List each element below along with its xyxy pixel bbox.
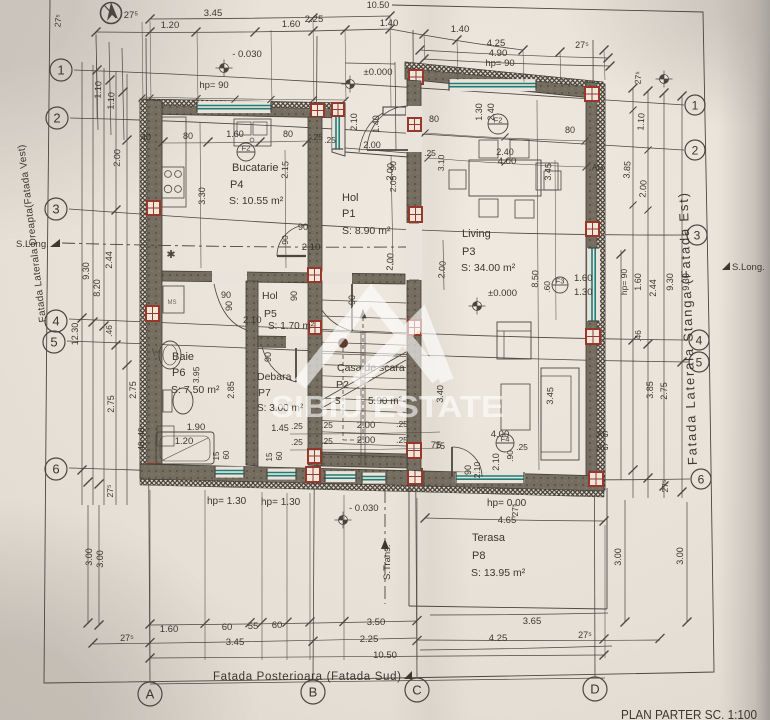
svg-text:1.10: 1.10 <box>106 92 117 110</box>
svg-text:2: 2 <box>53 111 60 126</box>
svg-text:60: 60 <box>222 622 233 633</box>
svg-text:1.40: 1.40 <box>451 24 470 35</box>
svg-text:80: 80 <box>565 125 575 135</box>
svg-text:6: 6 <box>52 462 59 477</box>
svg-text:10.50: 10.50 <box>373 650 397 661</box>
svg-text:.25: .25 <box>396 435 408 445</box>
svg-text:90: 90 <box>224 301 234 311</box>
svg-text:2.05: 2.05 <box>388 175 399 192</box>
svg-text:MS: MS <box>168 300 177 306</box>
svg-text:5: 5 <box>696 355 703 369</box>
svg-text:60: 60 <box>222 450 231 459</box>
svg-text:2.00: 2.00 <box>637 180 648 198</box>
svg-text:3: 3 <box>52 202 59 217</box>
svg-text:5: 5 <box>50 335 57 350</box>
svg-text:.90: .90 <box>505 450 515 462</box>
svg-text:2.00: 2.00 <box>357 435 376 446</box>
svg-text:1.60: 1.60 <box>226 129 244 139</box>
svg-text:S.Trans.: S.Trans. <box>382 544 393 580</box>
svg-text:27⁵: 27⁵ <box>124 10 139 21</box>
svg-text:12.30: 12.30 <box>70 323 80 346</box>
svg-text:1.20: 1.20 <box>175 436 194 447</box>
svg-text:✱: ✱ <box>166 249 175 261</box>
svg-text:2.10: 2.10 <box>472 461 482 478</box>
svg-text:27⁵: 27⁵ <box>105 485 115 498</box>
svg-text:P3: P3 <box>462 246 475 258</box>
svg-text:2.00: 2.00 <box>357 420 376 431</box>
svg-text:80: 80 <box>283 129 293 139</box>
svg-text:2.00: 2.00 <box>112 149 123 167</box>
svg-text:hp= 1.30: hp= 1.30 <box>261 497 301 508</box>
svg-text:27⁵: 27⁵ <box>52 14 64 28</box>
svg-text:6: 6 <box>698 472 705 486</box>
svg-text:2.00: 2.00 <box>436 261 447 279</box>
svg-text:.25: .25 <box>396 419 408 429</box>
svg-text:.46: .46 <box>633 330 643 342</box>
svg-text:1: 1 <box>57 63 64 78</box>
svg-text:3.45: 3.45 <box>545 387 556 405</box>
svg-text:.25: .25 <box>291 421 303 431</box>
svg-text:60: 60 <box>275 451 284 460</box>
svg-text:P4: P4 <box>230 179 243 191</box>
svg-text:PLAN PARTER SC. 1:100: PLAN PARTER SC. 1:100 <box>621 707 757 720</box>
svg-text:3.85: 3.85 <box>621 161 632 179</box>
svg-text:SIBIU ESTATE: SIBIU ESTATE <box>271 389 504 424</box>
svg-text:3: 3 <box>694 228 701 242</box>
svg-text:.25: .25 <box>516 442 528 452</box>
svg-text:F2: F2 <box>242 144 251 153</box>
svg-text:3.45: 3.45 <box>204 8 223 19</box>
svg-text:.25: .25 <box>311 132 323 142</box>
svg-text:1.20: 1.20 <box>161 20 180 31</box>
svg-text:3.50: 3.50 <box>367 617 386 628</box>
svg-text:3.00: 3.00 <box>675 547 685 565</box>
svg-text:.25: .25 <box>321 436 333 446</box>
svg-text:90: 90 <box>289 291 299 301</box>
svg-text:.25: .25 <box>321 420 333 430</box>
svg-text:1.45: 1.45 <box>271 423 289 433</box>
svg-text:1.60: 1.60 <box>160 624 179 635</box>
svg-text:3.00: 3.00 <box>613 548 623 566</box>
svg-text:3.00: 3.00 <box>84 548 94 566</box>
svg-text:2.75: 2.75 <box>128 381 138 399</box>
svg-text:P1: P1 <box>342 208 355 220</box>
svg-text:Bucatarie: Bucatarie <box>232 162 278 174</box>
svg-text:80: 80 <box>183 131 193 141</box>
svg-text:90: 90 <box>347 295 357 305</box>
svg-text:80: 80 <box>429 114 439 124</box>
svg-text:Fatada Posterioara (Fatada Sud: Fatada Posterioara (Fatada Sud) <box>213 671 401 683</box>
svg-text:D: D <box>590 682 599 697</box>
svg-text:90: 90 <box>298 222 308 232</box>
svg-text:AG: AG <box>592 163 604 172</box>
svg-text:P5: P5 <box>264 308 277 320</box>
svg-text:2.75: 2.75 <box>106 395 116 413</box>
svg-text:P8: P8 <box>472 550 485 562</box>
svg-text:4.25: 4.25 <box>489 633 508 644</box>
svg-text:hp= 90: hp= 90 <box>619 269 629 296</box>
svg-text:S: 1.70 m²: S: 1.70 m² <box>268 321 315 332</box>
svg-text:3.00: 3.00 <box>95 550 105 568</box>
svg-text:hp= 0.00: hp= 0.00 <box>487 498 527 509</box>
svg-text:hp= 90: hp= 90 <box>485 58 514 69</box>
svg-text:1.10: 1.10 <box>635 113 646 131</box>
svg-text:40: 40 <box>141 132 151 142</box>
svg-text:Hol: Hol <box>262 290 278 302</box>
svg-text:2.44: 2.44 <box>104 251 114 269</box>
svg-text:2.85: 2.85 <box>226 381 236 399</box>
svg-text:2.00: 2.00 <box>363 140 381 150</box>
svg-text:F3: F3 <box>556 277 565 286</box>
svg-text:4.00: 4.00 <box>491 429 510 440</box>
svg-text:Hol: Hol <box>342 192 359 204</box>
svg-text:P7: P7 <box>258 387 271 399</box>
svg-text:8.20: 8.20 <box>92 279 102 297</box>
svg-text:27⁵: 27⁵ <box>660 480 670 493</box>
svg-text:1.10: 1.10 <box>93 81 104 99</box>
svg-text:Terasa: Terasa <box>472 532 506 544</box>
svg-text:40: 40 <box>137 441 146 450</box>
svg-text:2.75: 2.75 <box>659 382 669 400</box>
svg-text:- 0.030: - 0.030 <box>232 49 262 60</box>
svg-text:9.30: 9.30 <box>665 273 675 291</box>
svg-text:10.50: 10.50 <box>367 0 390 10</box>
svg-text:S: 10.55 m²: S: 10.55 m² <box>229 195 284 207</box>
svg-text:±0.000: ±0.000 <box>488 288 517 299</box>
svg-text:1.60: 1.60 <box>633 273 643 291</box>
svg-text:2.10: 2.10 <box>349 113 359 131</box>
svg-text:4.00: 4.00 <box>498 156 517 167</box>
svg-text:90: 90 <box>388 161 398 171</box>
svg-text:1.40: 1.40 <box>380 18 399 29</box>
svg-text:AG: AG <box>597 430 609 439</box>
svg-text:2.10: 2.10 <box>491 453 501 471</box>
svg-text:.25: .25 <box>424 148 436 158</box>
svg-text:2.10: 2.10 <box>243 315 262 326</box>
svg-text:3.95: 3.95 <box>191 366 202 383</box>
svg-text:2.00: 2.00 <box>385 253 396 271</box>
svg-text:2.25: 2.25 <box>305 14 324 25</box>
svg-text:S: 13.95 m²: S: 13.95 m² <box>471 567 526 579</box>
svg-text:S.Long.: S.Long. <box>732 262 765 273</box>
svg-text:8.50: 8.50 <box>530 270 541 288</box>
svg-text:hp= 1.30: hp= 1.30 <box>207 496 247 507</box>
svg-text:.60: .60 <box>542 281 552 293</box>
svg-text:S: 8.90 m²: S: 8.90 m² <box>342 225 391 237</box>
svg-text:15: 15 <box>265 452 274 461</box>
svg-text:1.40: 1.40 <box>371 115 381 133</box>
svg-text:AG: AG <box>597 443 609 452</box>
svg-text:1.60: 1.60 <box>282 19 301 30</box>
svg-text:3.40: 3.40 <box>435 385 446 403</box>
svg-text:B: B <box>309 685 318 700</box>
svg-text:15: 15 <box>212 451 221 460</box>
svg-text:4: 4 <box>696 333 703 347</box>
svg-text:.25: .25 <box>324 135 336 145</box>
svg-text:1.90: 1.90 <box>187 422 206 433</box>
svg-text:C: C <box>412 683 421 698</box>
svg-text:2.44: 2.44 <box>648 279 658 297</box>
svg-text:- 0.030: - 0.030 <box>349 503 379 514</box>
svg-text:S: 34.00 m²: S: 34.00 m² <box>461 262 516 274</box>
svg-text:90: 90 <box>280 235 290 245</box>
svg-text:3.45: 3.45 <box>543 163 554 181</box>
svg-text:.46: .46 <box>104 325 114 337</box>
svg-text:3.45: 3.45 <box>226 637 245 648</box>
svg-text:2.10: 2.10 <box>302 242 321 253</box>
svg-text:27⁵: 27⁵ <box>120 633 134 643</box>
svg-text:Living: Living <box>462 228 491 240</box>
svg-text:P6: P6 <box>172 367 185 379</box>
svg-text:hp= 90: hp= 90 <box>199 80 228 91</box>
svg-text:A: A <box>146 687 155 702</box>
svg-text:±0.000: ±0.000 <box>364 67 393 78</box>
svg-text:Debara: Debara <box>257 371 292 383</box>
svg-text:90: 90 <box>263 352 273 362</box>
svg-text:75: 75 <box>435 441 445 451</box>
svg-text:40: 40 <box>137 427 146 436</box>
svg-text:.25: .25 <box>291 437 303 447</box>
svg-text:27⁵: 27⁵ <box>578 630 592 640</box>
svg-text:2: 2 <box>692 143 699 157</box>
svg-text:27⁵: 27⁵ <box>633 71 644 85</box>
svg-text:4: 4 <box>52 314 59 329</box>
svg-text:1.60: 1.60 <box>574 273 593 284</box>
svg-text:3.10: 3.10 <box>436 154 447 171</box>
svg-text:2.25: 2.25 <box>360 634 379 645</box>
svg-text:3.30: 3.30 <box>197 187 207 205</box>
svg-text:1: 1 <box>692 98 699 112</box>
svg-text:27⁵: 27⁵ <box>575 40 589 50</box>
svg-text:3.85: 3.85 <box>645 381 655 399</box>
svg-text:1.30: 1.30 <box>474 103 484 121</box>
svg-text:9.30: 9.30 <box>81 262 91 280</box>
svg-text:2.40: 2.40 <box>486 103 496 121</box>
svg-text:3.65: 3.65 <box>523 616 542 627</box>
svg-text:90: 90 <box>221 290 231 300</box>
svg-text:1.30: 1.30 <box>574 287 593 298</box>
svg-text:60: 60 <box>272 620 283 631</box>
svg-text:27⁵: 27⁵ <box>510 504 520 517</box>
